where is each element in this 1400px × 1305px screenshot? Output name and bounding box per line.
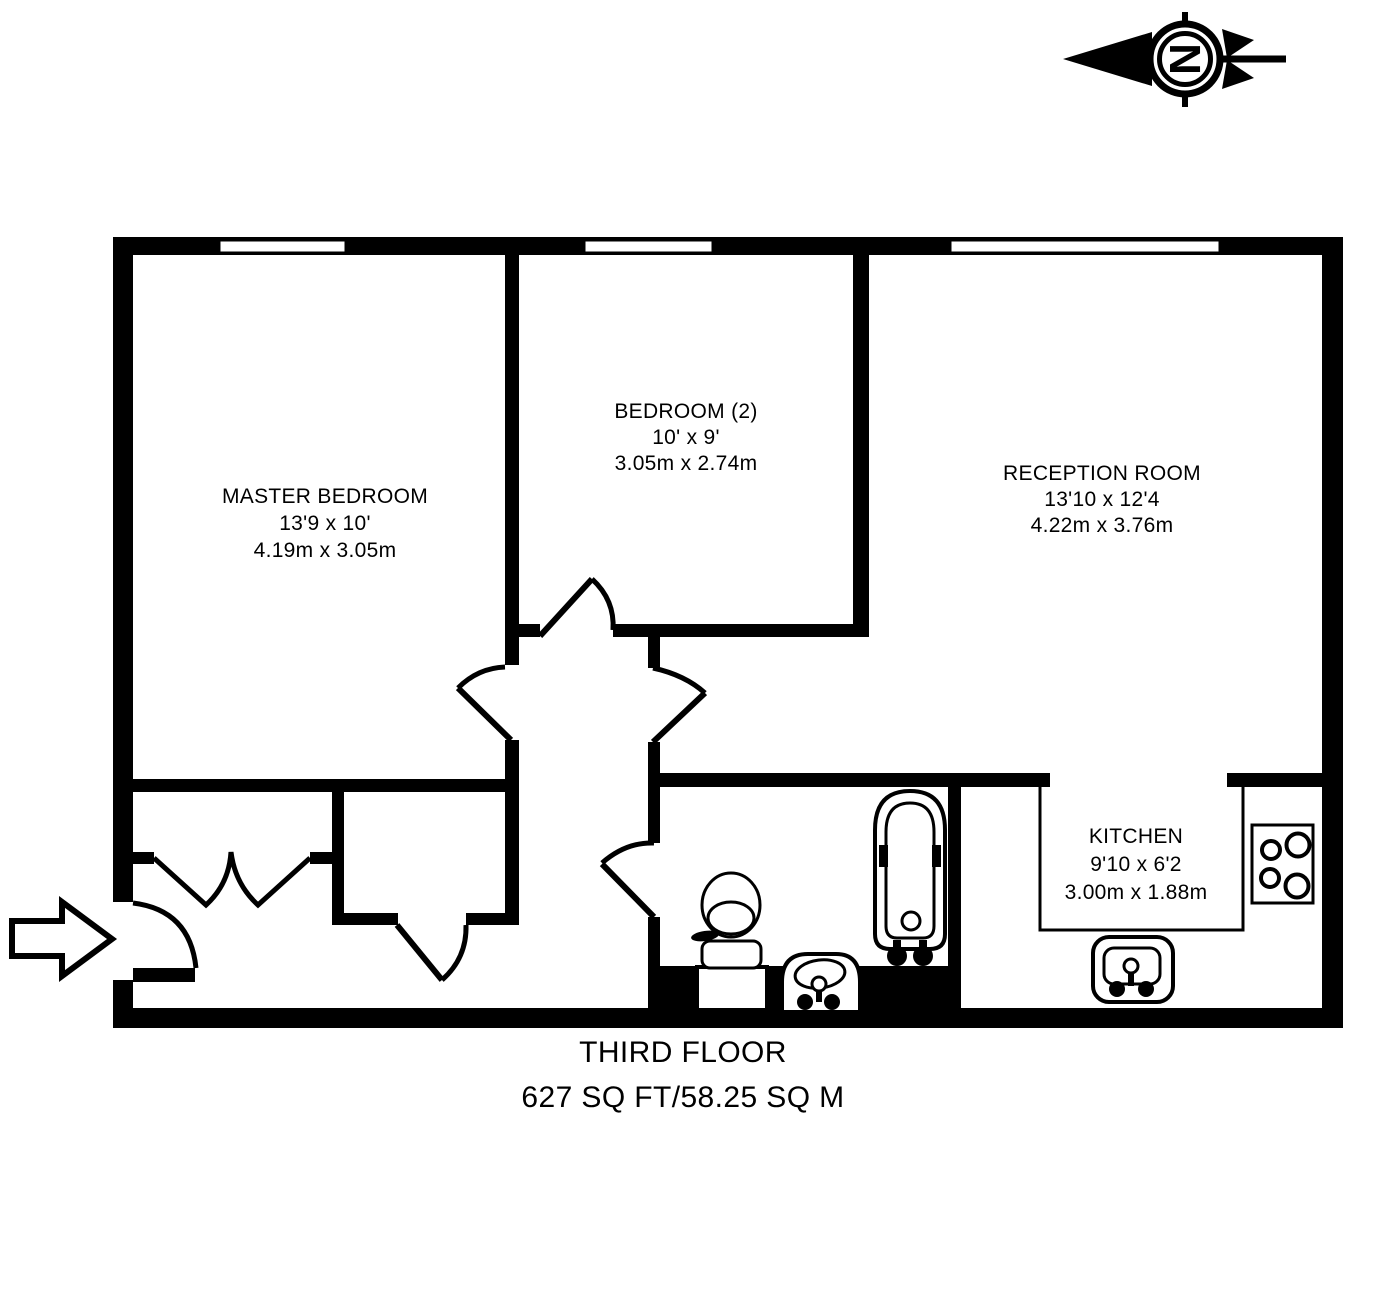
- bedroom2-door-arc: [592, 579, 613, 630]
- wall-master-bedroom2: [505, 253, 519, 665]
- room-name: KITCHEN: [1089, 825, 1183, 848]
- room-size-metric: 3.05m x 2.74m: [615, 452, 758, 475]
- wall-storage-bottom-right: [466, 913, 519, 925]
- compass-feather-lower: [1222, 60, 1254, 89]
- compass-feather-upper: [1222, 29, 1254, 58]
- label-master-bedroom: MASTER BEDROOM 13'9 x 10' 4.19m x 3.05m: [222, 485, 428, 562]
- floor-area: 627 SQ FT/58.25 SQ M: [521, 1081, 844, 1114]
- label-kitchen: KITCHEN 9'10 x 6'2 3.00m x 1.88m: [1065, 825, 1208, 904]
- bath-grip-right: [932, 845, 941, 867]
- kitchen-handle-right: [1138, 981, 1154, 997]
- wall-bathroom-right: [948, 773, 961, 1008]
- wall-bedroom2-bottom-left: [505, 624, 540, 637]
- bath-grip-left: [879, 845, 888, 867]
- master-bedroom-door: [458, 667, 511, 740]
- entry-arrow: [12, 902, 112, 976]
- toilet: [690, 873, 761, 968]
- wall-closet-stub-left: [133, 852, 154, 864]
- hob-burner-1: [1262, 841, 1280, 859]
- wall-bedroom2-bottom-right: [613, 624, 861, 637]
- kitchen-sink: [1093, 937, 1173, 1002]
- entrance-door: [133, 903, 196, 982]
- master-door-leaf: [458, 688, 511, 740]
- window-master-bedroom: [219, 240, 346, 253]
- bath-tap-left: [887, 946, 907, 966]
- room-size-metric: 3.00m x 1.88m: [1065, 881, 1208, 904]
- label-bedroom2: BEDROOM (2) 10' x 9' 3.05m x 2.74m: [614, 400, 757, 475]
- wall-storage-bottom-left: [332, 913, 398, 925]
- kitchen-handle-left: [1109, 981, 1125, 997]
- bedroom2-door: [540, 579, 613, 636]
- toilet-cistern: [702, 941, 761, 968]
- entrance-door-arc: [133, 903, 196, 968]
- storage-door-arc: [442, 925, 466, 980]
- floor-title: THIRD FLOOR: [579, 1036, 787, 1069]
- hob-burner-2: [1287, 834, 1310, 857]
- wall-hall-reception-stub: [648, 637, 660, 668]
- room-size-imperial: 13'10 x 12'4: [1044, 488, 1160, 511]
- closet-bifold-doors: [154, 852, 310, 905]
- hob-burner-3: [1261, 869, 1279, 887]
- bedroom2-door-leaf: [540, 579, 592, 636]
- room-size-metric: 4.22m x 3.76m: [1031, 514, 1174, 537]
- bath-tub: [875, 791, 945, 966]
- compass: N: [1063, 12, 1286, 107]
- room-name: MASTER BEDROOM: [222, 485, 428, 508]
- hob: [1252, 825, 1313, 903]
- basin-tap: [812, 977, 826, 991]
- storage-door-leaf: [397, 925, 442, 980]
- toilet-pedestal: [697, 967, 767, 1010]
- master-door-arc: [458, 667, 505, 688]
- wall-master-bottom: [113, 779, 509, 792]
- room-labels: MASTER BEDROOM 13'9 x 10' 4.19m x 3.05m …: [222, 400, 1207, 904]
- room-size-metric: 4.19m x 3.05m: [254, 539, 397, 562]
- compass-letter: N: [1160, 43, 1209, 75]
- footer: THIRD FLOOR 627 SQ FT/58.25 SQ M: [521, 1036, 844, 1114]
- wall-bedroom2-reception: [853, 253, 869, 637]
- window-reception: [950, 240, 1220, 253]
- entrance-door-leaf: [133, 968, 195, 982]
- room-size-imperial: 10' x 9': [652, 426, 720, 449]
- bath-tap-right: [913, 946, 933, 966]
- room-name: RECEPTION ROOM: [1003, 462, 1201, 485]
- basin-handle-left: [797, 994, 813, 1010]
- storage-door: [397, 925, 466, 980]
- wall-corridor-left: [505, 740, 519, 925]
- reception-door: [653, 668, 705, 742]
- basin-handle-right: [824, 994, 840, 1010]
- room-size-imperial: 9'10 x 6'2: [1090, 853, 1182, 876]
- wall-kitchen-top-stub: [1227, 773, 1322, 787]
- wall-hall-bathroom-mid: [648, 742, 660, 843]
- hob-burner-4: [1286, 875, 1309, 898]
- entry-arrow-icon: [12, 902, 112, 976]
- window-bedroom2: [584, 240, 713, 253]
- floorplan-canvas: N MASTER BEDROOM 13'9 x 10' 4.19m x 3.05…: [0, 0, 1400, 1305]
- bathroom-door: [602, 843, 654, 917]
- floorplan-page: N MASTER BEDROOM 13'9 x 10' 4.19m x 3.05…: [0, 0, 1400, 1305]
- reception-door-arc: [653, 668, 705, 693]
- label-reception-room: RECEPTION ROOM 13'10 x 12'4 4.22m x 3.76…: [1003, 462, 1201, 537]
- room-name: BEDROOM (2): [614, 400, 757, 423]
- wall-left-upper: [113, 237, 133, 902]
- wall-bathroom-top: [648, 773, 1050, 787]
- room-size-imperial: 13'9 x 10': [279, 512, 371, 535]
- wall-right: [1322, 237, 1343, 1028]
- bathroom-door-arc: [602, 843, 654, 863]
- kitchen-tap: [1124, 959, 1138, 973]
- closet-bifold-path: [154, 852, 310, 905]
- bathroom-door-leaf: [602, 864, 654, 917]
- wall-closet-stub-right: [310, 852, 344, 864]
- north-arrow-icon: [1063, 32, 1152, 86]
- reception-door-leaf: [653, 693, 705, 742]
